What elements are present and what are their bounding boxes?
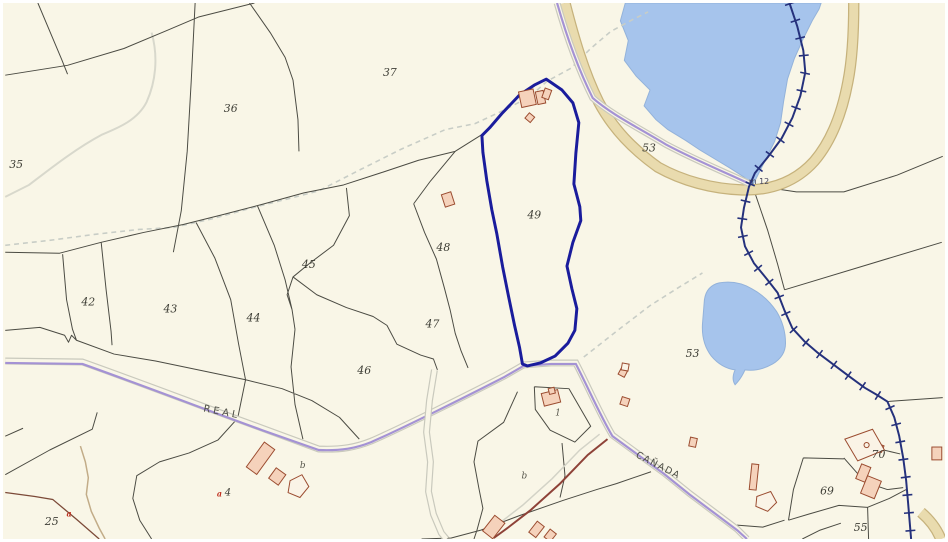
building-footprint — [441, 192, 454, 207]
parcel-36: 36 — [224, 102, 238, 115]
map-frame: 353637424344454647484953535569702514aabb… — [0, 0, 948, 542]
parcel-25: 25 — [44, 515, 59, 528]
parcel-47: 47 — [425, 317, 440, 330]
building-footprint — [246, 442, 274, 474]
parcel-lines-west — [5, 135, 482, 440]
pond — [702, 282, 785, 385]
building-footprint — [519, 89, 537, 108]
building-footprint — [529, 521, 545, 537]
parcel-42: 42 — [80, 296, 95, 309]
parcel-lines-northwest — [5, 3, 299, 252]
building-label-1: 1 — [555, 408, 561, 418]
selected-parcel-49-outline[interactable] — [482, 79, 581, 366]
real-track — [5, 361, 523, 449]
dashed-track — [5, 12, 648, 245]
marker-a-west: a — [67, 509, 72, 518]
cadastral-map-canvas[interactable]: 353637424344454647484953535569702514aabb… — [3, 3, 945, 539]
building-footprint — [749, 464, 759, 490]
parcel-37: 37 — [383, 66, 397, 79]
parcel-69: 69 — [820, 484, 834, 497]
building-footprint — [932, 447, 942, 460]
parcel-53-south: 53 — [686, 347, 700, 360]
real-route-line — [5, 363, 523, 450]
parcel-49: 49 — [526, 209, 541, 222]
footpath — [5, 33, 155, 197]
parcel-55: 55 — [854, 521, 868, 534]
parcel-lines-center — [293, 151, 468, 370]
utility-line — [494, 439, 608, 538]
building-footprint — [756, 492, 777, 512]
building-footprint — [689, 437, 698, 447]
km-marker: m 12 — [749, 177, 769, 186]
building-footprint — [542, 88, 552, 100]
dashed-track-east — [584, 273, 703, 357]
subparcel-b-west: b — [300, 461, 306, 471]
subparcel-b-center: b — [521, 472, 527, 482]
utility-line-shadow — [486, 434, 600, 533]
building-footprint — [548, 387, 555, 394]
parcel-46: 46 — [356, 364, 371, 377]
parcel-45: 45 — [301, 258, 316, 271]
building-footprint — [620, 397, 630, 407]
building-footprint — [544, 529, 556, 539]
parcel-44: 44 — [246, 311, 261, 324]
building-footprint — [525, 113, 535, 123]
parcel-lines-south-center — [422, 387, 651, 539]
subparcel-4: 4 — [224, 487, 231, 498]
parcel-35: 35 — [9, 158, 23, 171]
building-footprint — [483, 515, 505, 539]
building-footprint — [621, 363, 629, 371]
parcel-48: 48 — [435, 241, 450, 254]
route-label-canada: CAÑADA — [634, 450, 682, 482]
building-layer — [246, 88, 941, 539]
route-label-real: REAL — [202, 404, 241, 422]
building-footprint — [288, 475, 309, 498]
corner-road — [921, 512, 941, 539]
parcel-43: 43 — [162, 303, 177, 316]
building-footprint — [269, 468, 286, 485]
parcel-53-north: 53 — [642, 141, 656, 154]
marker-a-center: a — [217, 489, 222, 498]
parcel-70: 70 — [872, 448, 886, 461]
